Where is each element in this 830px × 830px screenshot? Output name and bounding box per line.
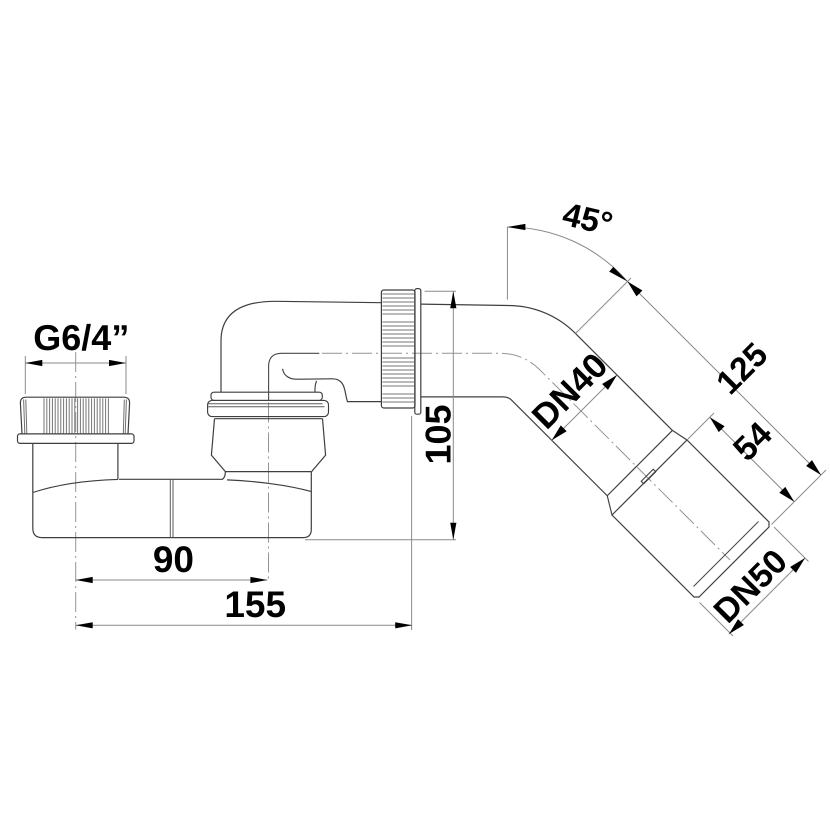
svg-text:105: 105 bbox=[418, 404, 459, 464]
svg-text:90: 90 bbox=[153, 539, 194, 580]
svg-text:155: 155 bbox=[224, 584, 286, 625]
svg-text:G6/4”: G6/4” bbox=[33, 317, 129, 358]
